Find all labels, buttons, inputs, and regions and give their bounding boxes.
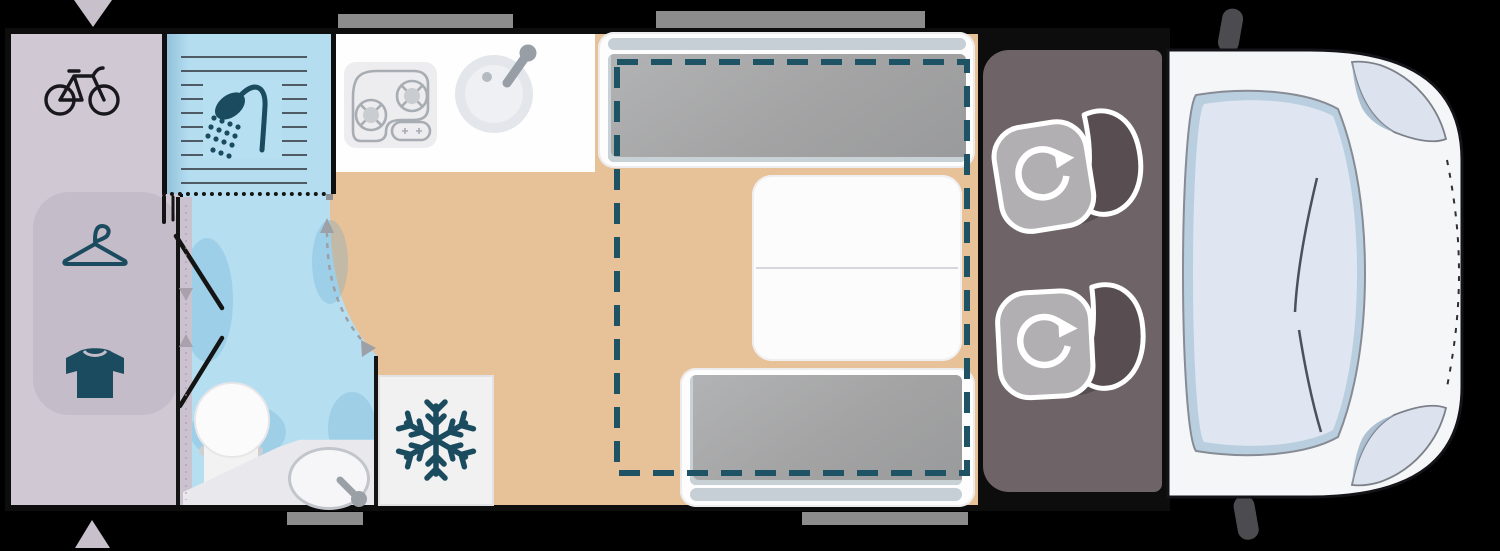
windshield (1193, 100, 1357, 446)
window-top-bench (656, 11, 925, 28)
kitchen-counter (333, 34, 595, 172)
rear-bench-cushion (608, 54, 966, 162)
wardrobe-area (33, 192, 178, 415)
front-bench-cushion (690, 375, 962, 485)
shower-curtain-dotted-line (162, 192, 326, 196)
wiper-lines (1295, 178, 1321, 432)
window-bottom-bathroom (287, 512, 363, 525)
toilet (194, 382, 270, 458)
side-window-bottom (1352, 406, 1446, 486)
table-fold-line (756, 267, 958, 269)
door-arrow-bottom (75, 520, 110, 548)
mirror-bottom (1232, 494, 1260, 541)
cab-floor (983, 50, 1162, 492)
washbasin (288, 447, 370, 510)
mirror-top (1216, 7, 1244, 54)
sliding-partition-strip (180, 197, 192, 505)
side-window-top-shade (1352, 62, 1394, 132)
side-window-top (1352, 62, 1446, 142)
shower-duckboard-lines (181, 56, 307, 184)
hood-dashed-line (1447, 160, 1459, 387)
window-top-kitchen (338, 14, 513, 28)
side-window-bottom-shade (1352, 415, 1394, 485)
windshield-edge (1183, 91, 1365, 455)
van-cab-exterior (1168, 7, 1462, 541)
van-body (1168, 50, 1462, 497)
front-bench-headrest-slot (690, 488, 962, 501)
rear-bench-headrest-slot (608, 38, 966, 50)
window-bottom-bench (802, 512, 968, 525)
door-arrow-top (74, 0, 112, 27)
refrigerator (378, 375, 494, 506)
campervan-floorplan (0, 0, 1500, 551)
